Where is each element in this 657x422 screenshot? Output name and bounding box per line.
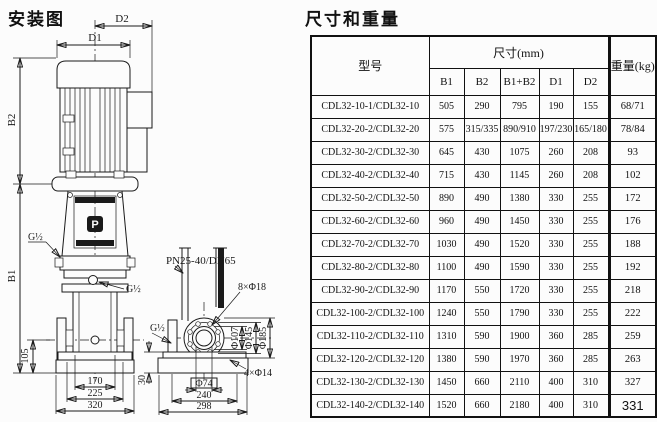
cell-model: CDL32-70-2/CDL32-70: [311, 233, 429, 256]
cell-b2: 660: [464, 371, 500, 394]
dim-label-dia107: Φ107: [230, 327, 241, 349]
cell-weight: 259: [609, 325, 656, 348]
cell-model: CDL32-80-2/CDL32-80: [311, 256, 429, 279]
cell-b1: 1240: [429, 302, 464, 325]
cell-weight: 78/84: [609, 118, 656, 141]
cell-b1: 1100: [429, 256, 464, 279]
header-b1: B1: [429, 68, 464, 95]
cell-b1b2: 1590: [500, 256, 539, 279]
cell-d1: 190: [539, 95, 573, 118]
flange-spec-label: PN25-40/DN65: [166, 255, 236, 267]
cell-model: CDL32-40-2/CDL32-40: [311, 164, 429, 187]
cell-weight: 263: [609, 348, 656, 371]
dim-label-105: 105: [20, 349, 31, 364]
header-size-group: 尺寸(mm): [429, 36, 609, 68]
cell-b1b2: 1720: [500, 279, 539, 302]
dim-label-d2: D2: [115, 13, 128, 25]
dim-label-298: 298: [197, 401, 212, 412]
terminal-box: [127, 92, 152, 172]
cell-b1: 1170: [429, 279, 464, 302]
cell-b2: 290: [464, 95, 500, 118]
cell-b1: 1380: [429, 348, 464, 371]
cell-d2: 208: [573, 164, 609, 187]
cell-b1b2: 1900: [500, 325, 539, 348]
cell-b1b2: 1790: [500, 302, 539, 325]
cell-b1: 1030: [429, 233, 464, 256]
cell-d1: 260: [539, 141, 573, 164]
table-row: CDL32-110-2/CDL32-1101310590190036028525…: [311, 325, 656, 348]
dim-label-d1: D1: [88, 32, 101, 44]
side-view: PN25-40/DN65 8×Φ18 Φ107 Φ145 Φ185: [137, 248, 275, 415]
table-row: CDL32-80-2/CDL32-8011004901590330255192: [311, 256, 656, 279]
cell-d2: 155: [573, 95, 609, 118]
front-view: P: [6, 13, 152, 414]
cell-d2: 255: [573, 210, 609, 233]
dim-label-30: 30: [137, 375, 148, 385]
bolt-circle-label: 8×Φ18: [238, 282, 266, 293]
cell-d1: 360: [539, 348, 573, 371]
cell-weight: 327: [609, 371, 656, 394]
brand-logo-icon: P: [87, 216, 103, 232]
cell-b1: 645: [429, 141, 464, 164]
header-d2: D2: [573, 68, 609, 95]
cell-b2: 430: [464, 141, 500, 164]
cell-b1: 575: [429, 118, 464, 141]
cell-b2: 490: [464, 256, 500, 279]
table-row: CDL32-100-2/CDL32-1001240550179033025522…: [311, 302, 656, 325]
cell-d2: 208: [573, 141, 609, 164]
cell-d1: 197/230: [539, 118, 573, 141]
cell-model: CDL32-140-2/CDL32-140: [311, 394, 429, 417]
motor: [52, 61, 152, 191]
cell-d2: 255: [573, 233, 609, 256]
cell-model: CDL32-50-2/CDL32-50: [311, 187, 429, 210]
cell-b1: 715: [429, 164, 464, 187]
dim-label-dia145: Φ145: [244, 327, 255, 349]
table-row: CDL32-30-2/CDL32-30645430107526020893: [311, 141, 656, 164]
cell-b2: 590: [464, 348, 500, 371]
header-b2: B2: [464, 68, 500, 95]
cell-weight: 102: [609, 164, 656, 187]
cell-b1b2: 1075: [500, 141, 539, 164]
spec-table-body: CDL32-10-1/CDL32-1050529079519015568/71C…: [311, 95, 656, 417]
cell-d1: 360: [539, 325, 573, 348]
cell-b1: 1520: [429, 394, 464, 417]
header-model: 型号: [311, 36, 429, 95]
cell-model: CDL32-110-2/CDL32-110: [311, 325, 429, 348]
cell-b2: 490: [464, 233, 500, 256]
cell-b1b2: 1970: [500, 348, 539, 371]
cell-d2: 285: [573, 325, 609, 348]
table-row: CDL32-40-2/CDL32-407154301145260208102: [311, 164, 656, 187]
dim-label-b2: B2: [6, 114, 18, 127]
table-row: CDL32-20-2/CDL32-20575315/335890/910197/…: [311, 118, 656, 141]
dim-label-320: 320: [88, 400, 103, 411]
cell-model: CDL32-130-2/CDL32-130: [311, 371, 429, 394]
spec-table: 型号 尺寸(mm) 重量(kg) B1 B2 B1+B2 D1 D2 CDL32…: [310, 35, 657, 418]
dim-label-225: 225: [88, 388, 103, 399]
spec-table-section: 型号 尺寸(mm) 重量(kg) B1 B2 B1+B2 D1 D2 CDL32…: [310, 35, 657, 418]
cell-b1: 890: [429, 187, 464, 210]
cell-model: CDL32-90-2/CDL32-90: [311, 279, 429, 302]
cell-b1: 1450: [429, 371, 464, 394]
cell-b2: 550: [464, 279, 500, 302]
dim-label-dia185: Φ185: [258, 327, 269, 349]
cell-model: CDL32-120-2/CDL32-120: [311, 348, 429, 371]
port-label-g-half-center: G½: [126, 284, 141, 295]
cell-d2: 310: [573, 394, 609, 417]
cell-model: CDL32-20-2/CDL32-20: [311, 118, 429, 141]
cell-b1b2: 795: [500, 95, 539, 118]
cell-d1: 330: [539, 302, 573, 325]
cell-b2: 660: [464, 394, 500, 417]
cell-weight: 172: [609, 187, 656, 210]
cell-model: CDL32-10-1/CDL32-10: [311, 95, 429, 118]
cell-b2: 550: [464, 302, 500, 325]
table-title: 尺寸和重量: [305, 5, 400, 30]
cell-b1: 1310: [429, 325, 464, 348]
dim-label-dia74: Φ74: [195, 379, 212, 390]
cell-d1: 260: [539, 164, 573, 187]
table-row: CDL32-50-2/CDL32-508904901380330255172: [311, 187, 656, 210]
header-weight: 重量(kg): [609, 36, 656, 95]
cell-d2: 255: [573, 187, 609, 210]
port-label-g-half-left: G½: [28, 232, 43, 243]
cell-b1b2: 890/910: [500, 118, 539, 141]
cell-weight: 222: [609, 302, 656, 325]
dim-label-170: 170: [88, 376, 103, 387]
cell-d2: 165/180: [573, 118, 609, 141]
cell-b1: 505: [429, 95, 464, 118]
cell-d1: 330: [539, 210, 573, 233]
cell-d1: 330: [539, 256, 573, 279]
cell-d1: 330: [539, 279, 573, 302]
table-row: CDL32-70-2/CDL32-7010304901520330255188: [311, 233, 656, 256]
cell-model: CDL32-30-2/CDL32-30: [311, 141, 429, 164]
cell-d1: 330: [539, 233, 573, 256]
table-row: CDL32-120-2/CDL32-1201380590197036028526…: [311, 348, 656, 371]
cell-weight: 188: [609, 233, 656, 256]
cell-weight: 192: [609, 256, 656, 279]
cell-b1b2: 2180: [500, 394, 539, 417]
cell-d1: 330: [539, 187, 573, 210]
cell-b1b2: 2110: [500, 371, 539, 394]
cell-d2: 310: [573, 371, 609, 394]
cell-d2: 255: [573, 279, 609, 302]
cell-b1b2: 1450: [500, 210, 539, 233]
cell-b2: 430: [464, 164, 500, 187]
cell-b1b2: 1380: [500, 187, 539, 210]
cell-d1: 400: [539, 371, 573, 394]
cell-b2: 490: [464, 210, 500, 233]
cell-d2: 255: [573, 256, 609, 279]
port-label-g-half-side: G½: [150, 323, 165, 334]
header-d1: D1: [539, 68, 573, 95]
cell-model: CDL32-100-2/CDL32-100: [311, 302, 429, 325]
brand-logo-letter: P: [91, 219, 98, 231]
cell-b2: 315/335: [464, 118, 500, 141]
cell-b1b2: 1520: [500, 233, 539, 256]
cell-d2: 285: [573, 348, 609, 371]
cell-b2: 590: [464, 325, 500, 348]
dim-label-240: 240: [197, 390, 212, 401]
cell-d1: 400: [539, 394, 573, 417]
table-row: CDL32-10-1/CDL32-1050529079519015568/71: [311, 95, 656, 118]
cell-weight: 218: [609, 279, 656, 302]
pump-head: [55, 256, 135, 292]
datasheet-page: 安装图 尺寸和重量: [0, 0, 657, 422]
cell-b1: 960: [429, 210, 464, 233]
cell-b1b2: 1145: [500, 164, 539, 187]
header-b1b2: B1+B2: [500, 68, 539, 95]
table-row: CDL32-140-2/CDL32-1401520660218040031033…: [311, 394, 656, 417]
cell-model: CDL32-60-2/CDL32-60: [311, 210, 429, 233]
cell-b2: 490: [464, 187, 500, 210]
pump-base: [56, 352, 134, 373]
dim-label-b1: B1: [6, 270, 18, 283]
installation-drawing: P: [0, 0, 300, 422]
cell-weight: 68/71: [609, 95, 656, 118]
base-holes-label: 4×Φ14: [244, 368, 272, 379]
cell-weight: 176: [609, 210, 656, 233]
table-row: CDL32-130-2/CDL32-1301450660211040031032…: [311, 371, 656, 394]
cell-d2: 255: [573, 302, 609, 325]
cell-weight: 331: [609, 394, 656, 417]
table-row: CDL32-60-2/CDL32-609604901450330255176: [311, 210, 656, 233]
table-row: CDL32-90-2/CDL32-9011705501720330255218: [311, 279, 656, 302]
cell-weight: 93: [609, 141, 656, 164]
